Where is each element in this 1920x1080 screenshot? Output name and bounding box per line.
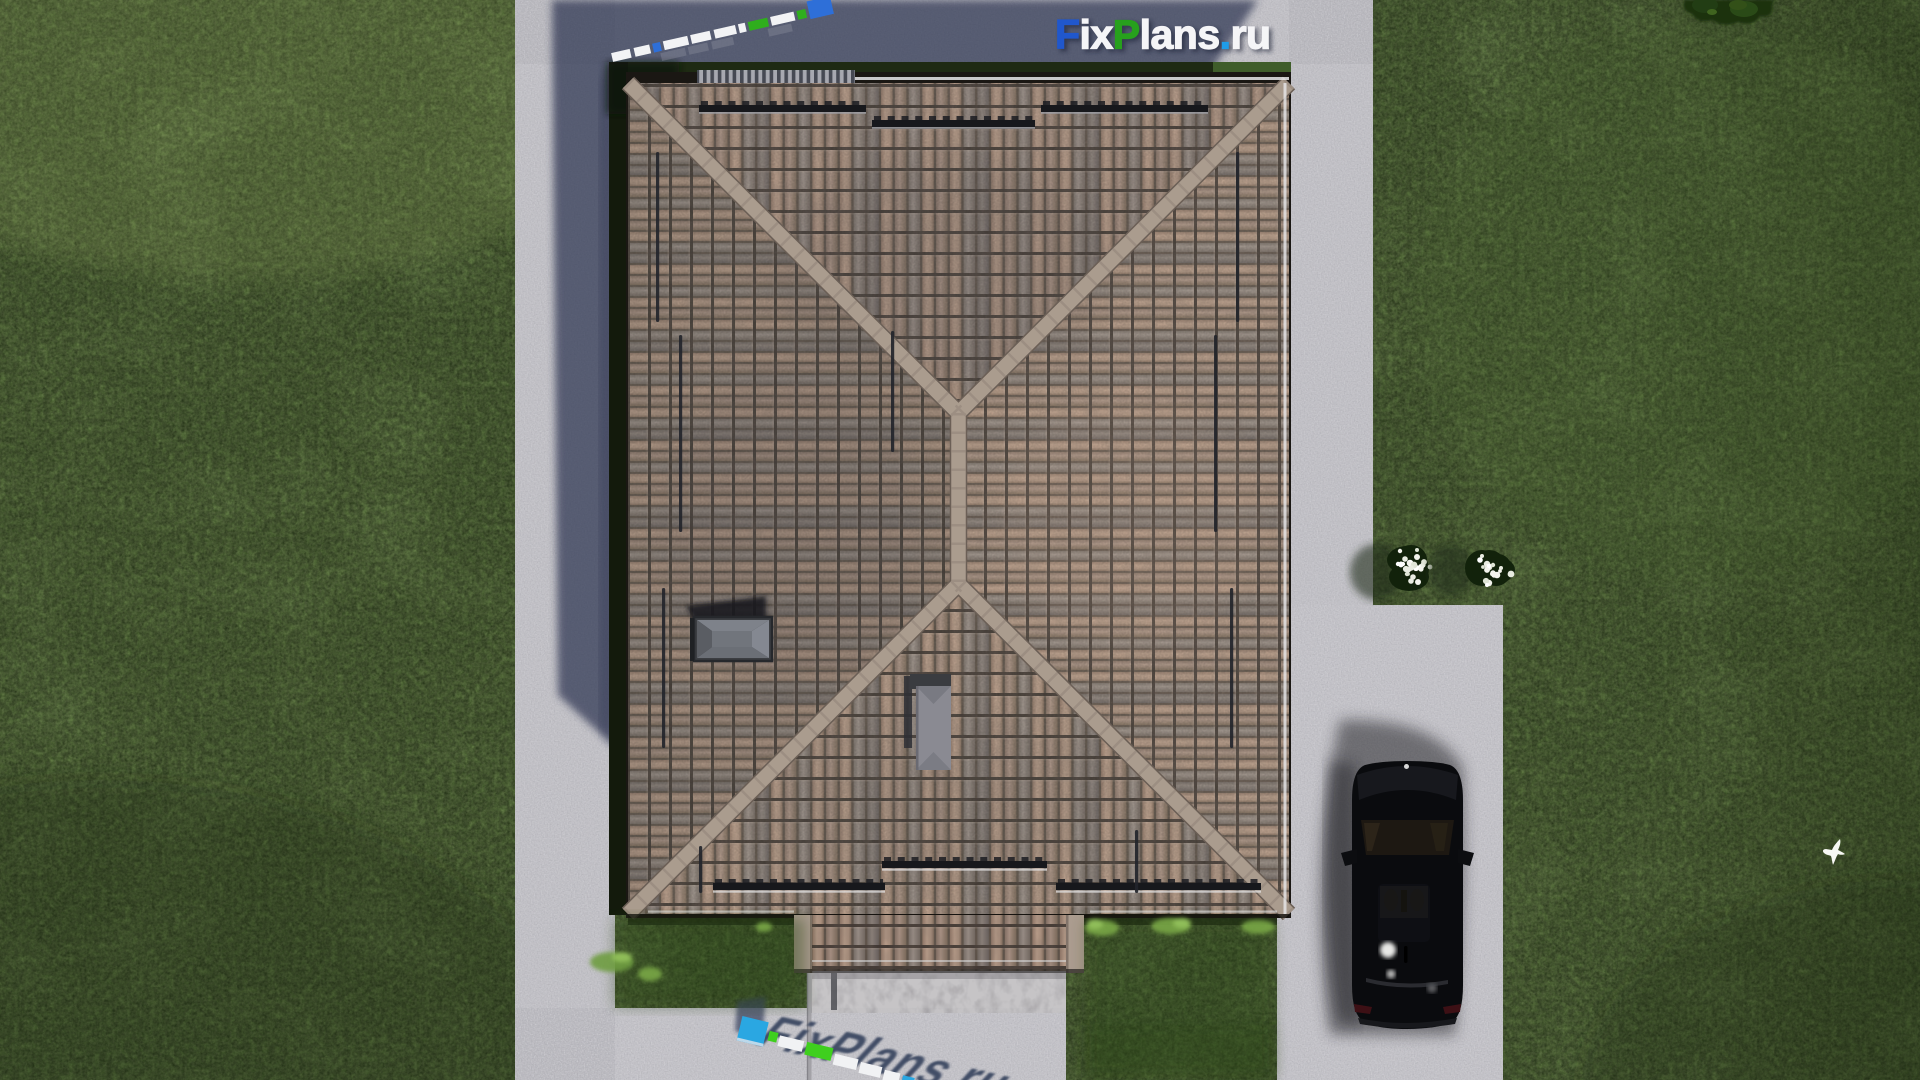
svg-text:FixPlans.ru: FixPlans.ru xyxy=(1055,12,1271,58)
